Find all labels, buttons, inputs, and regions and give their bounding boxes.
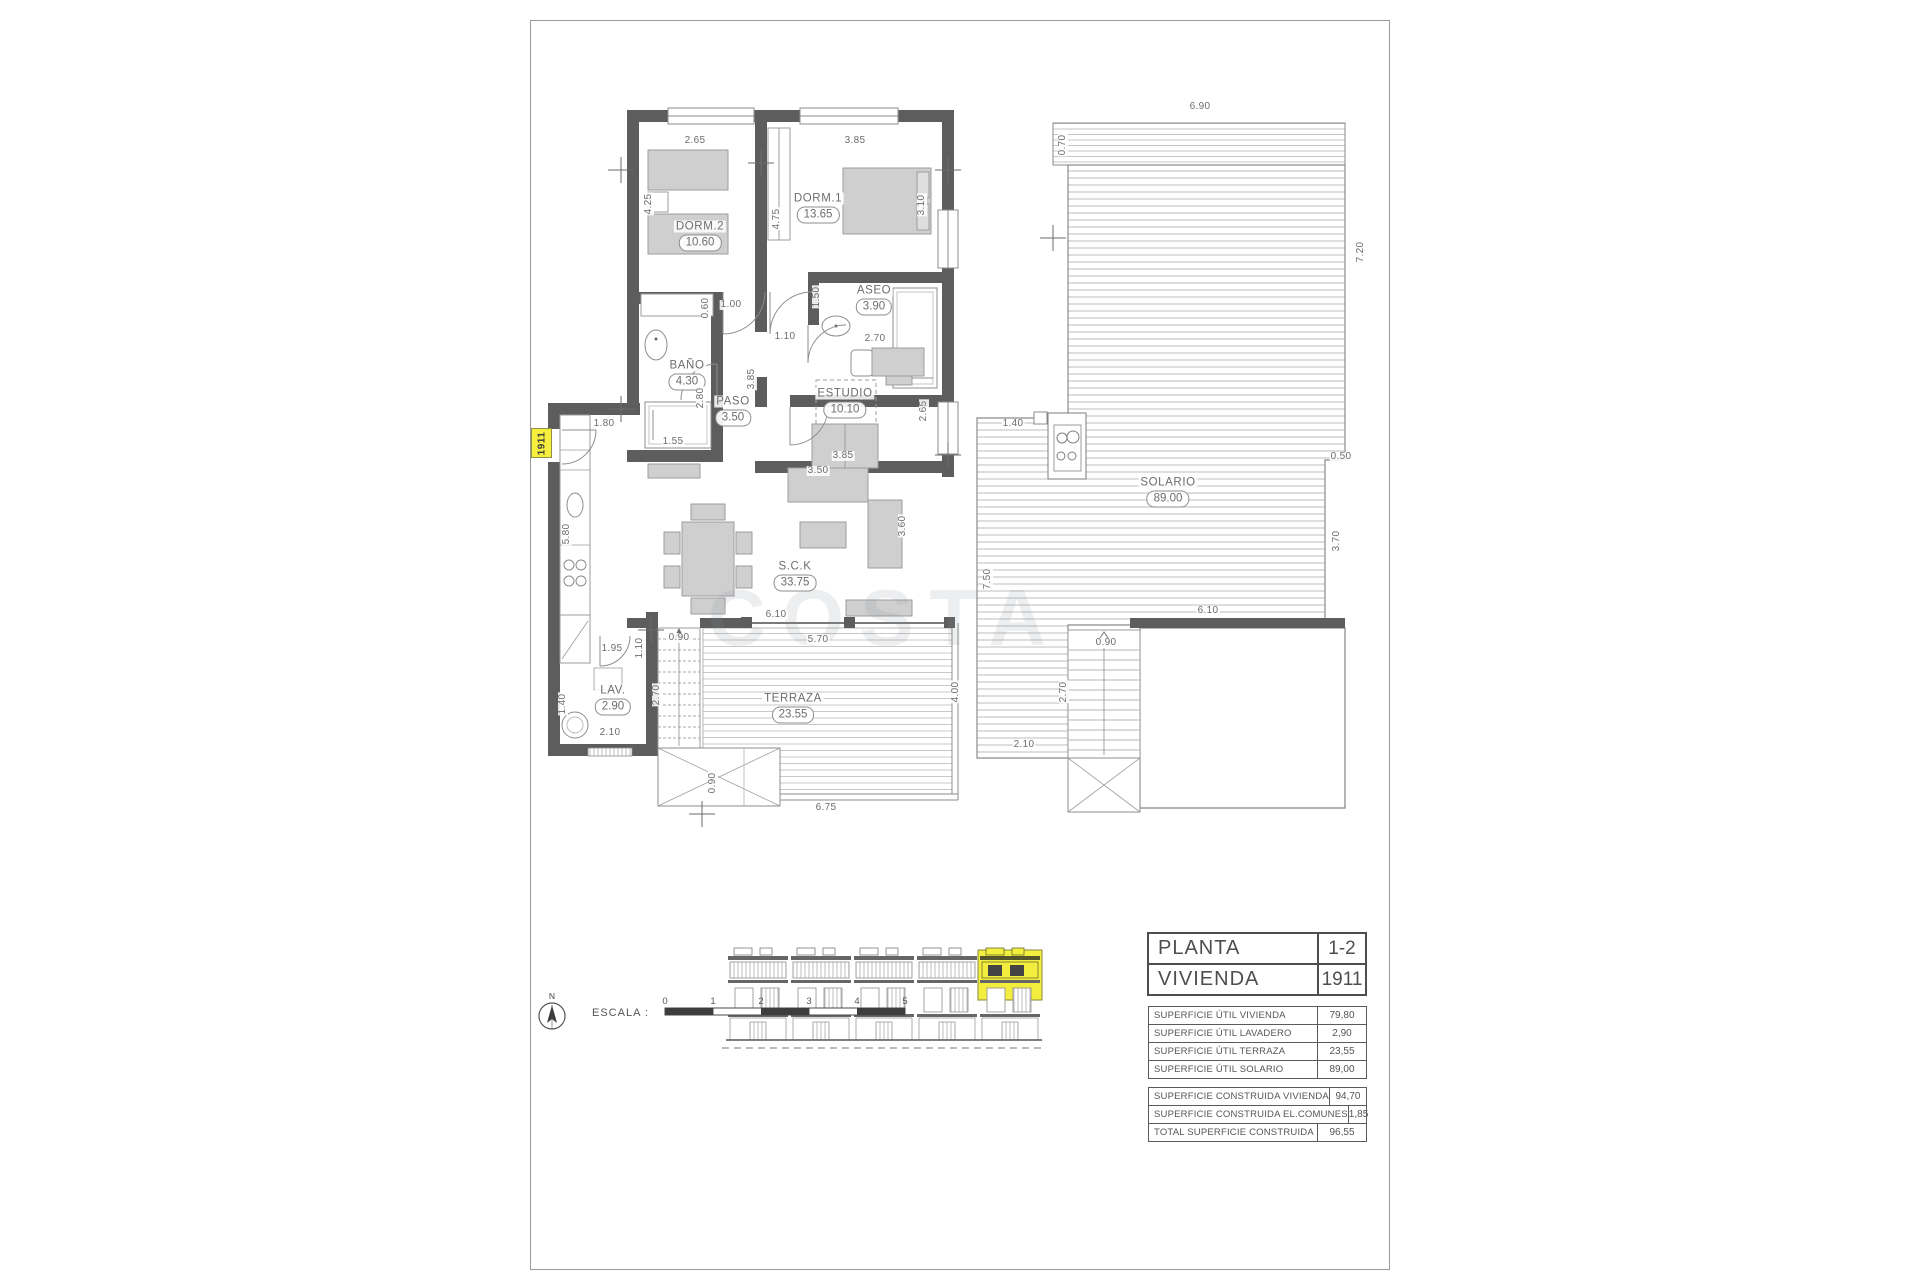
room-area: 23.55 [772,707,815,724]
room-label-terraza: TERRAZA23.55 [762,693,824,724]
room-label-sck: S.C.K33.75 [774,561,817,592]
dimension-label: 1.80 [593,419,616,429]
dimension-label: 2.65 [919,400,929,423]
table-row: SUPERFICIE ÚTIL TERRAZA23,55 [1149,1042,1366,1060]
dimension-label: 5.80 [562,523,572,546]
dimension-label: 2.10 [1013,740,1036,750]
dimension-label: 1.40 [1002,419,1025,429]
useful-surface-table: SUPERFICIE ÚTIL VIVIENDA79,80SUPERFICIE … [1148,1006,1367,1079]
dimension-label: 3.60 [898,515,908,538]
solario-structure [977,123,1345,812]
room-area: 89.00 [1147,491,1190,508]
room-area: 2.90 [595,699,631,716]
dimension-label: 3.10 [917,194,927,217]
dimension-label: 0.90 [708,772,718,795]
dimension-label: 0.90 [668,633,691,643]
elevation-drawing [722,948,1044,1048]
plan-linework [0,0,1920,1280]
dimension-label: 1.95 [601,644,624,654]
dimension-label: 3.85 [844,136,867,146]
table-row: SUPERFICIE ÚTIL LAVADERO2,90 [1149,1024,1366,1042]
north-label: N [549,991,555,1001]
dimension-label: 7.50 [983,568,993,591]
dimension-label: 2.10 [599,728,622,738]
room-label-solario: SOLARIO89.00 [1138,477,1197,508]
room-name: ESTUDIO [815,388,874,400]
room-name: BAÑO [668,360,707,372]
table-row-value: 94,70 [1329,1088,1366,1105]
room-label-aseo: ASEO3.90 [855,285,893,316]
room-area: 13.65 [797,207,840,224]
table-row: SUPERFICIE CONSTRUIDA VIVIENDA94,70 [1149,1088,1366,1105]
scale-tick: 5 [902,996,907,1007]
dimension-label: 3.85 [747,368,757,391]
elevation-unit [854,948,914,1040]
dimension-label: 3.70 [1332,530,1342,553]
dimension-label: 2.65 [684,136,707,146]
unit-tag: 1911 [531,428,552,458]
table-row-value: 23,55 [1317,1043,1366,1060]
room-name: TERRAZA [762,693,824,705]
scale-bar [665,1008,905,1015]
table-row-label: TOTAL SUPERFICIE CONSTRUIDA [1149,1124,1317,1141]
table-row: SUPERFICIE ÚTIL VIVIENDA79,80 [1149,1007,1366,1024]
table-row: SUPERFICIE CONSTRUIDA EL.COMUNES1,85 [1149,1105,1366,1123]
plan-id-table: PLANTA1-2VIVIENDA1911 [1147,932,1367,996]
table-row-label: SUPERFICIE CONSTRUIDA VIVIENDA [1149,1088,1329,1105]
scale-tick: 4 [854,996,859,1007]
dimension-label: 1.55 [662,437,685,447]
room-area: 10.10 [824,402,867,419]
table-row-value: 1,85 [1348,1106,1368,1123]
table-row: SUPERFICIE ÚTIL SOLARIO89,00 [1149,1060,1366,1078]
dimension-label: 7.20 [1356,241,1366,264]
room-name: DORM.2 [674,221,726,233]
room-label-dorm1: DORM.113.65 [792,193,844,224]
table-row-label: SUPERFICIE ÚTIL VIVIENDA [1149,1007,1317,1024]
dimension-label: 0.70 [1058,134,1068,157]
scale-tick: 2 [758,996,763,1007]
elevation-unit [917,948,977,1040]
scale-tick: 0 [662,996,667,1007]
table-row-label: PLANTA [1149,934,1317,963]
room-label-lav: LAV.2.90 [595,685,631,716]
dimension-label: 1.00 [720,300,743,310]
dimension-label: 6.75 [815,803,838,813]
dimension-label: 5.70 [807,635,830,645]
room-name: SOLARIO [1138,477,1197,489]
dimension-label: 3.85 [832,451,855,461]
table-row-label: SUPERFICIE ÚTIL LAVADERO [1149,1025,1317,1042]
dimension-label: 0.50 [1330,452,1353,462]
dimension-label: 3.50 [807,466,830,476]
room-name: PASO [714,396,752,408]
room-name: DORM.1 [792,193,844,205]
drawing-sheet: COSTA 1911 DORM.210.60DORM.113.65ASEO3.9… [0,0,1920,1280]
table-row-label: SUPERFICIE CONSTRUIDA EL.COMUNES [1149,1106,1348,1123]
room-label-dorm2: DORM.210.60 [674,221,726,252]
table-row-value: 79,80 [1317,1007,1366,1024]
elevation-unit [791,948,851,1040]
dimension-label: 6.10 [1197,606,1220,616]
dimension-label: 6.90 [1189,102,1212,112]
dimension-label: 1.50 [812,286,822,309]
unit-tag-text: 1911 [536,431,547,455]
built-surface-table: SUPERFICIE CONSTRUIDA VIVIENDA94,70SUPER… [1148,1087,1367,1142]
table-row: PLANTA1-2 [1149,934,1365,963]
table-row-label: SUPERFICIE ÚTIL TERRAZA [1149,1043,1317,1060]
dimension-label: 1.10 [774,332,797,342]
dimension-label: 1.40 [558,693,568,716]
room-label-paso: PASO3.50 [714,396,752,427]
dimension-label: 1.10 [635,637,645,660]
room-label-estudio: ESTUDIO10.10 [815,388,874,419]
scale-tick: 1 [710,996,715,1007]
dimension-label: 0.60 [701,297,711,320]
room-area: 33.75 [774,575,817,592]
table-row: VIVIENDA1911 [1149,963,1365,994]
table-row-value: 96,55 [1317,1124,1366,1141]
dimension-label: 4.25 [644,193,654,216]
north-compass-icon [539,1003,565,1029]
dimension-label: 2.70 [864,334,887,344]
room-name: ASEO [855,285,893,297]
dimension-label: 4.75 [772,208,782,231]
table-row-value: 1911 [1317,965,1365,994]
dimension-label: 6.10 [765,610,788,620]
table-row-value: 2,90 [1317,1025,1366,1042]
table-row-label: VIVIENDA [1149,965,1317,994]
dimension-label: 2.70 [1059,681,1069,704]
dimension-label: 4.00 [951,681,961,704]
room-name: LAV. [595,685,631,697]
table-row-value: 89,00 [1317,1061,1366,1078]
room-name: S.C.K [774,561,817,573]
room-area: 10.60 [679,235,722,252]
dimension-label: 2.80 [696,387,706,410]
room-area: 3.50 [715,410,751,427]
scale-tick: 3 [806,996,811,1007]
dimension-label: 0.90 [1095,638,1118,648]
table-row-value: 1-2 [1317,934,1365,963]
room-area: 3.90 [856,299,892,316]
table-row-label: SUPERFICIE ÚTIL SOLARIO [1149,1061,1317,1078]
table-row: TOTAL SUPERFICIE CONSTRUIDA96,55 [1149,1123,1366,1141]
scale-label: ESCALA : [592,1007,649,1019]
dimension-label: 2.70 [652,684,662,707]
